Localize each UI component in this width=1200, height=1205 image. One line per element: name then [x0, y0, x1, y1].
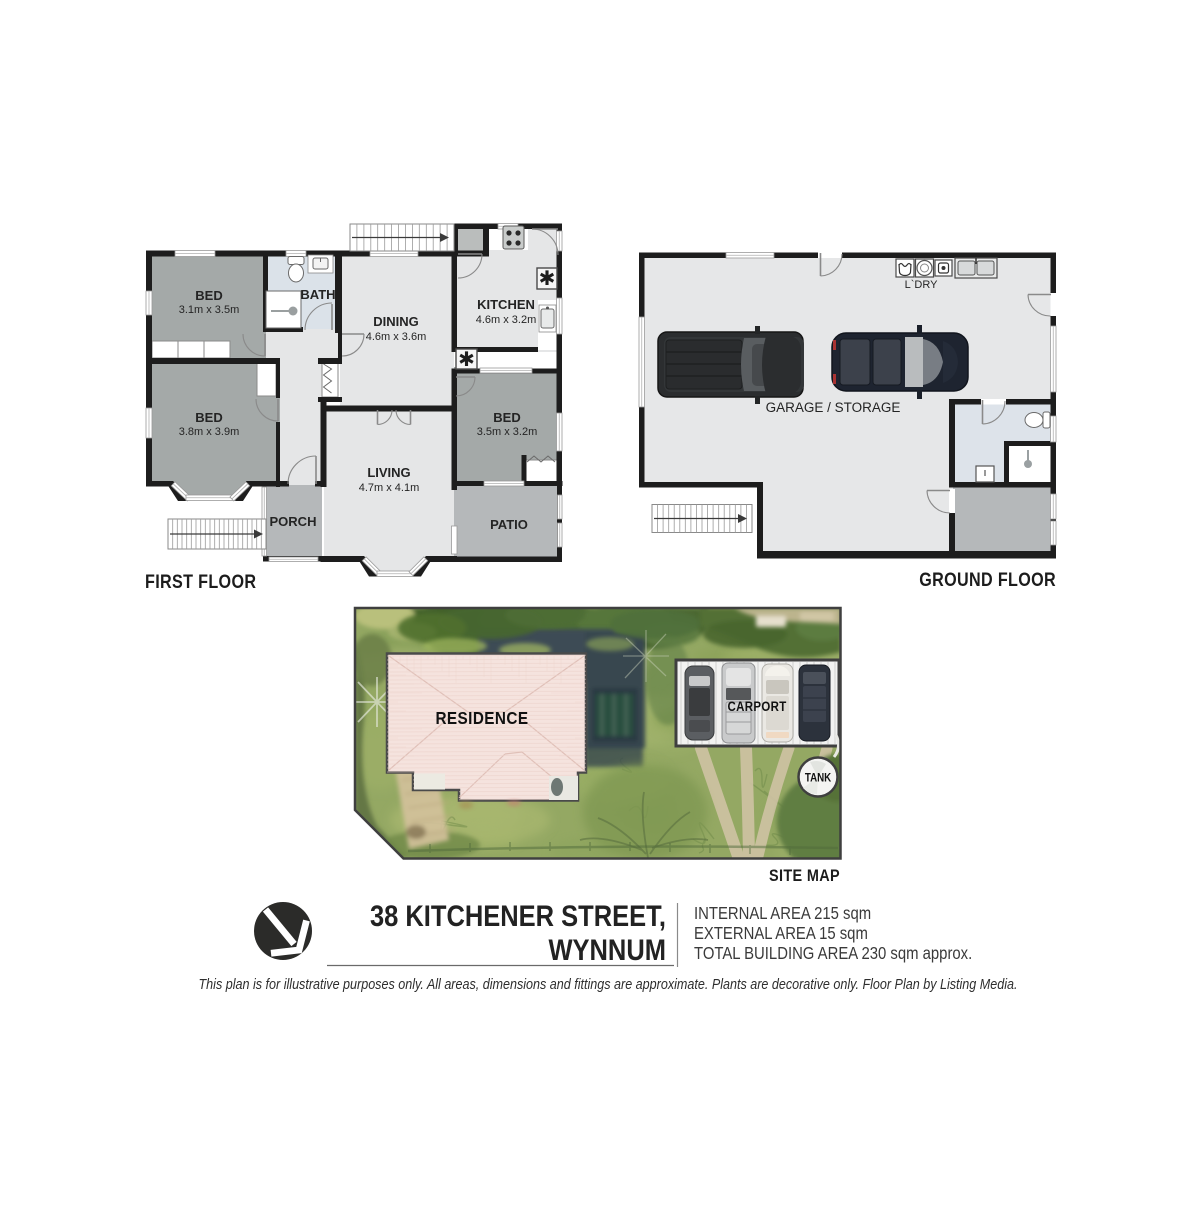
svg-text:✱: ✱: [458, 349, 475, 371]
svg-text:RESIDENCE: RESIDENCE: [435, 708, 528, 728]
svg-text:✱: ✱: [539, 268, 556, 290]
svg-text:CARPORT: CARPORT: [727, 699, 786, 714]
svg-text:PATIO: PATIO: [490, 517, 528, 532]
svg-text:BATH: BATH: [300, 287, 335, 302]
svg-text:GARAGE / STORAGE: GARAGE / STORAGE: [766, 400, 901, 415]
svg-text:DINING: DINING: [373, 314, 419, 329]
svg-text:TANK: TANK: [805, 772, 832, 785]
svg-text:TOTAL BUILDING AREA 230 sqm ap: TOTAL BUILDING AREA 230 sqm approx.: [694, 944, 972, 963]
svg-text:38 KITCHENER STREET,: 38 KITCHENER STREET,: [370, 899, 666, 932]
svg-text:PORCH: PORCH: [270, 514, 317, 529]
svg-text:INTERNAL AREA 215 sqm: INTERNAL AREA 215 sqm: [694, 904, 871, 923]
svg-text:WYNNUM: WYNNUM: [548, 933, 666, 966]
svg-text:4.6m x 3.2m: 4.6m x 3.2m: [476, 314, 537, 326]
svg-text:4.7m x 4.1m: 4.7m x 4.1m: [359, 482, 420, 494]
svg-text:L`DRY: L`DRY: [905, 279, 938, 291]
svg-text:SITE MAP: SITE MAP: [769, 867, 840, 885]
svg-text:LIVING: LIVING: [367, 465, 410, 480]
svg-text:BED: BED: [195, 288, 222, 303]
svg-text:This plan is for illustrative: This plan is for illustrative purposes o…: [199, 976, 1018, 992]
svg-text:BED: BED: [195, 410, 222, 425]
svg-text:3.5m x 3.2m: 3.5m x 3.2m: [477, 426, 538, 438]
svg-text:3.8m x 3.9m: 3.8m x 3.9m: [179, 426, 240, 438]
svg-text:EXTERNAL AREA 15 sqm: EXTERNAL AREA 15 sqm: [694, 924, 868, 943]
svg-text:BED: BED: [493, 410, 520, 425]
svg-text:GROUND FLOOR: GROUND FLOOR: [919, 569, 1056, 591]
svg-text:KITCHEN: KITCHEN: [477, 297, 535, 312]
svg-text:FIRST FLOOR: FIRST FLOOR: [145, 571, 256, 593]
svg-text:4.6m x 3.6m: 4.6m x 3.6m: [366, 331, 427, 343]
svg-text:3.1m x 3.5m: 3.1m x 3.5m: [179, 304, 240, 316]
